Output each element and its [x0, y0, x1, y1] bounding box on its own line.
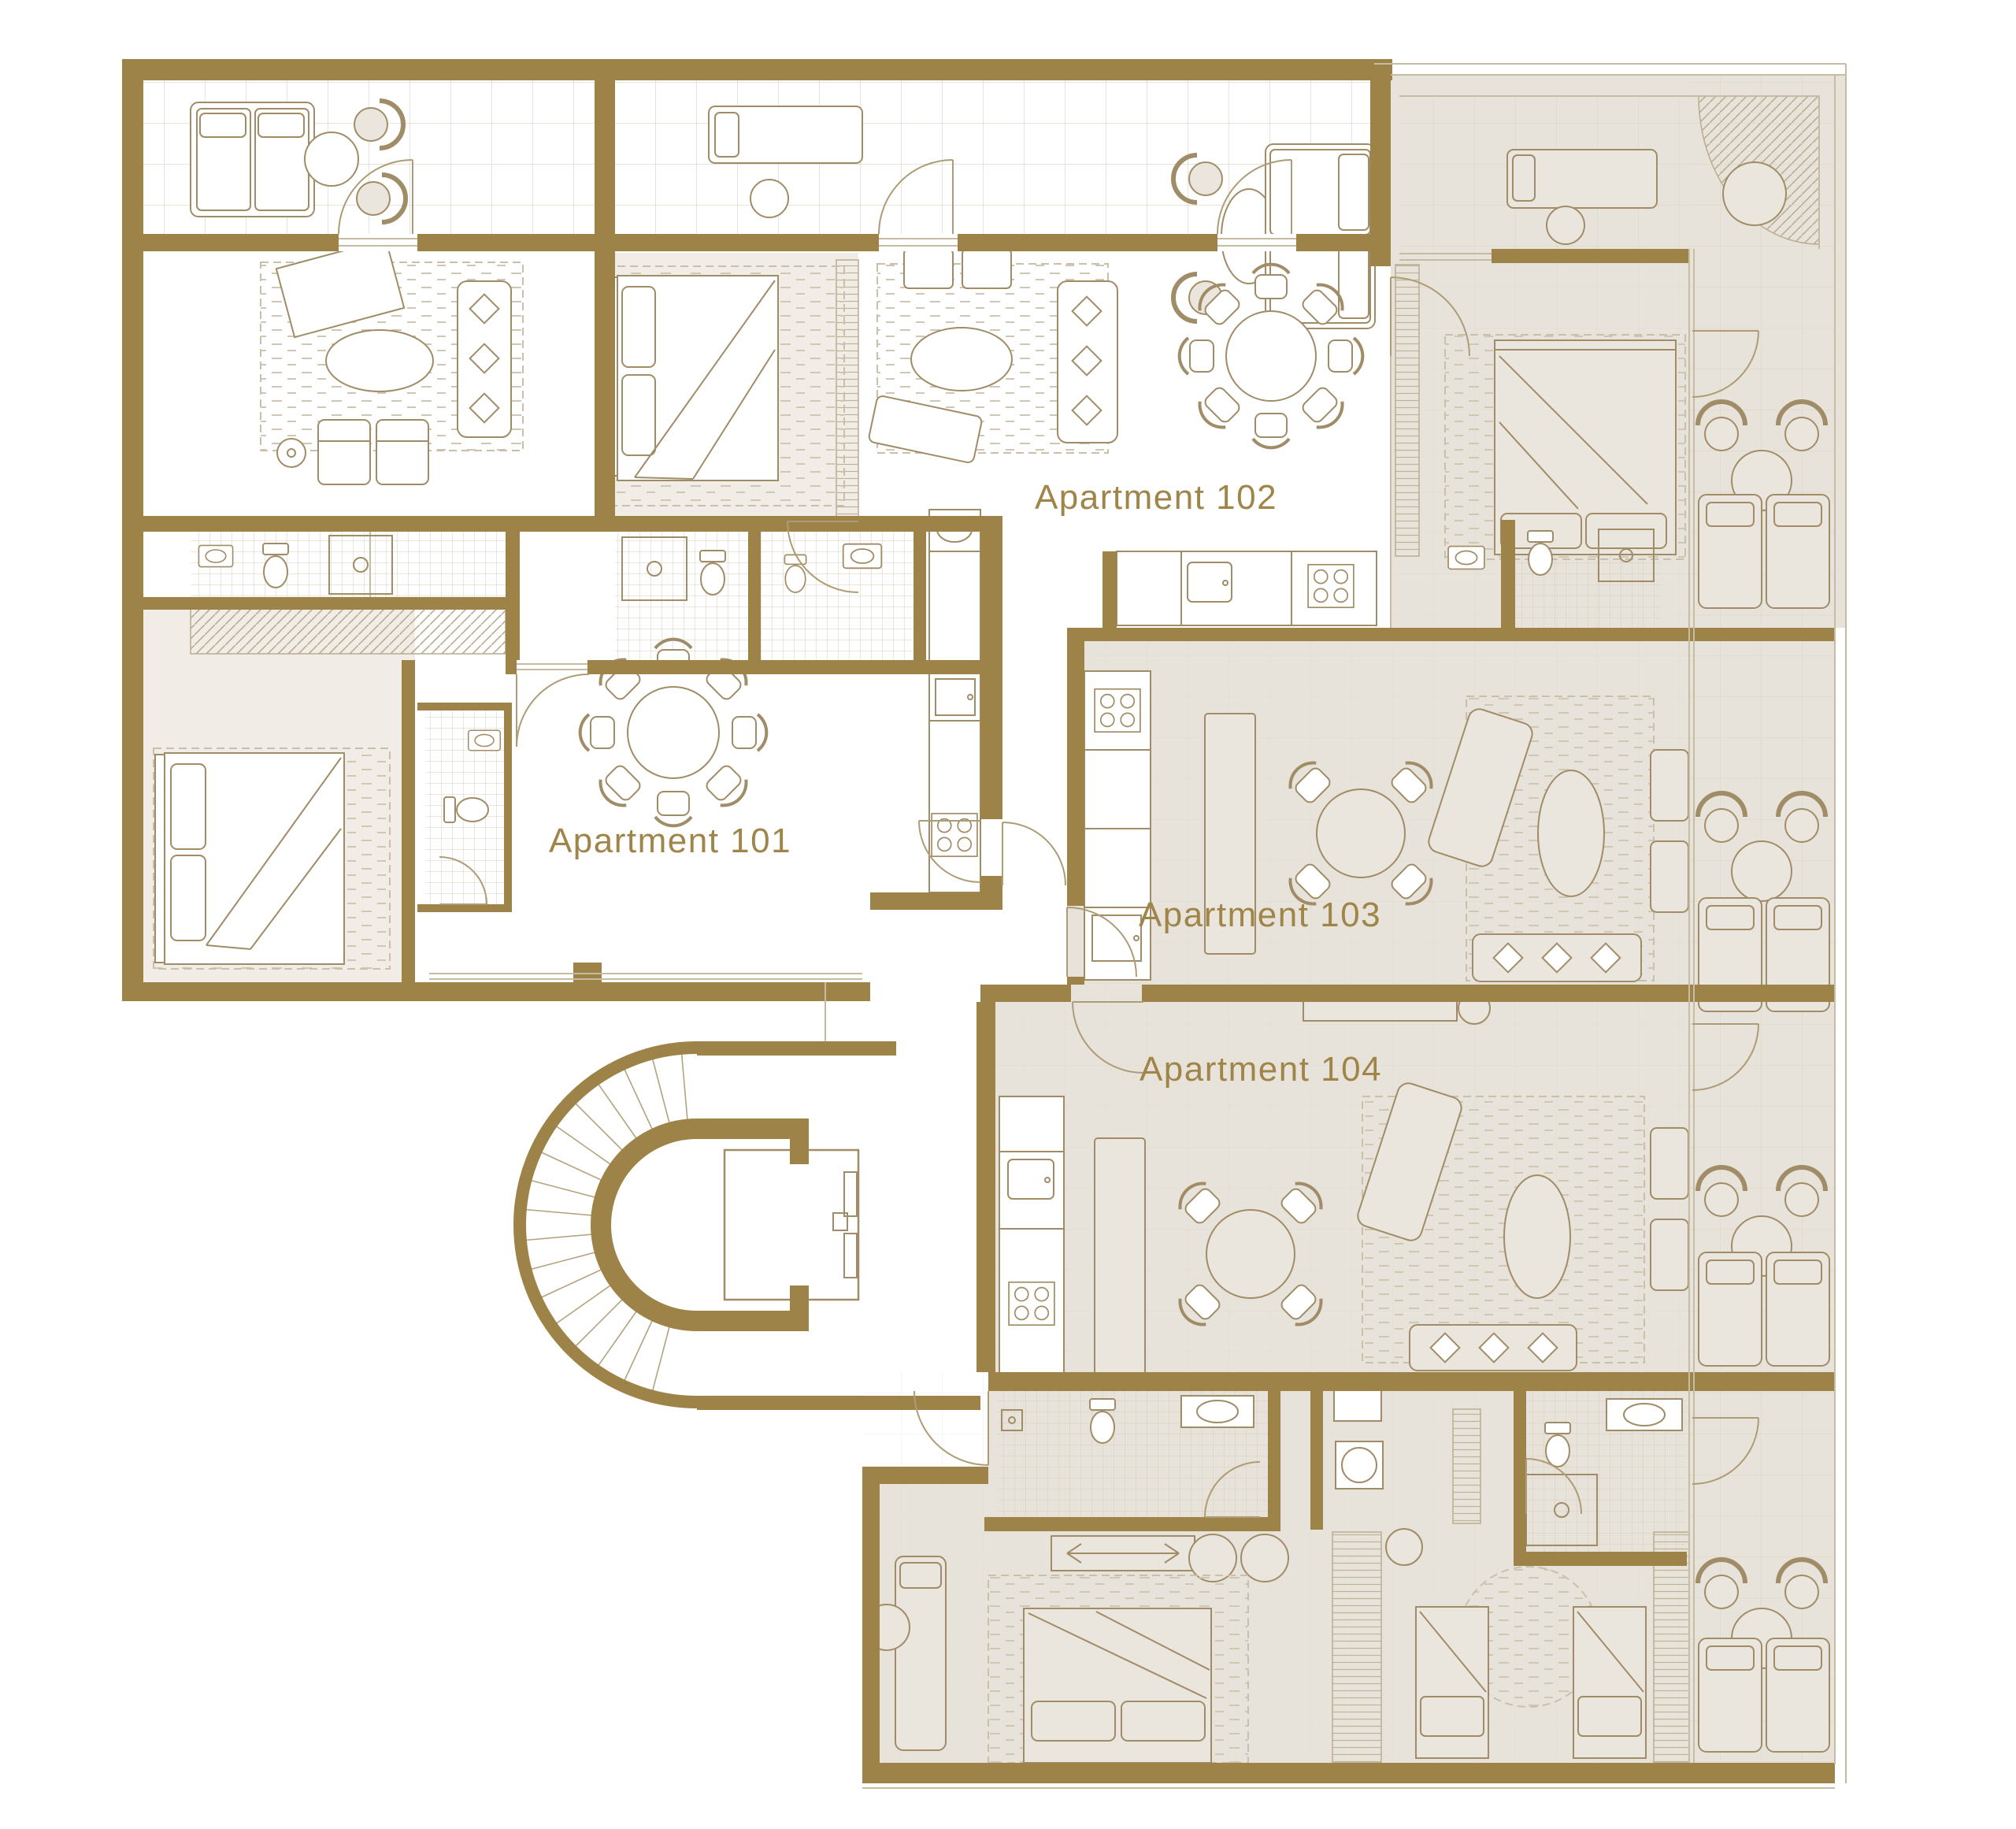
closet-bottom-right-b — [1654, 1532, 1689, 1763]
apartment-103-label: Apartment 103 — [1139, 896, 1381, 934]
elevator — [724, 1150, 858, 1300]
closet-bottom-right-a — [1453, 1409, 1480, 1523]
apartment-101-label: Apartment 101 — [549, 822, 791, 860]
apartment-102-label: Apartment 102 — [1035, 478, 1277, 517]
closet-upper-right — [1395, 265, 1419, 556]
bath-tiles-1 — [191, 532, 506, 597]
closet-bottom-mid — [1332, 1532, 1381, 1763]
floor-plan-page: Apartment 101 Apartment 102 Apartment 10… — [0, 0, 2016, 1829]
floor-plan-canvas: Apartment 101 Apartment 102 Apartment 10… — [0, 0, 2016, 1829]
apartment-101-kitchen — [929, 510, 980, 892]
apartment-102-bedroom-furniture — [605, 266, 844, 506]
apartment-101-living-furniture — [261, 239, 523, 484]
apartment-104-label: Apartment 104 — [1140, 1050, 1382, 1089]
apartment-101-bedroom-furniture — [154, 748, 390, 969]
apartment-102-kitchen — [1117, 551, 1377, 625]
closet-101 — [191, 608, 506, 654]
